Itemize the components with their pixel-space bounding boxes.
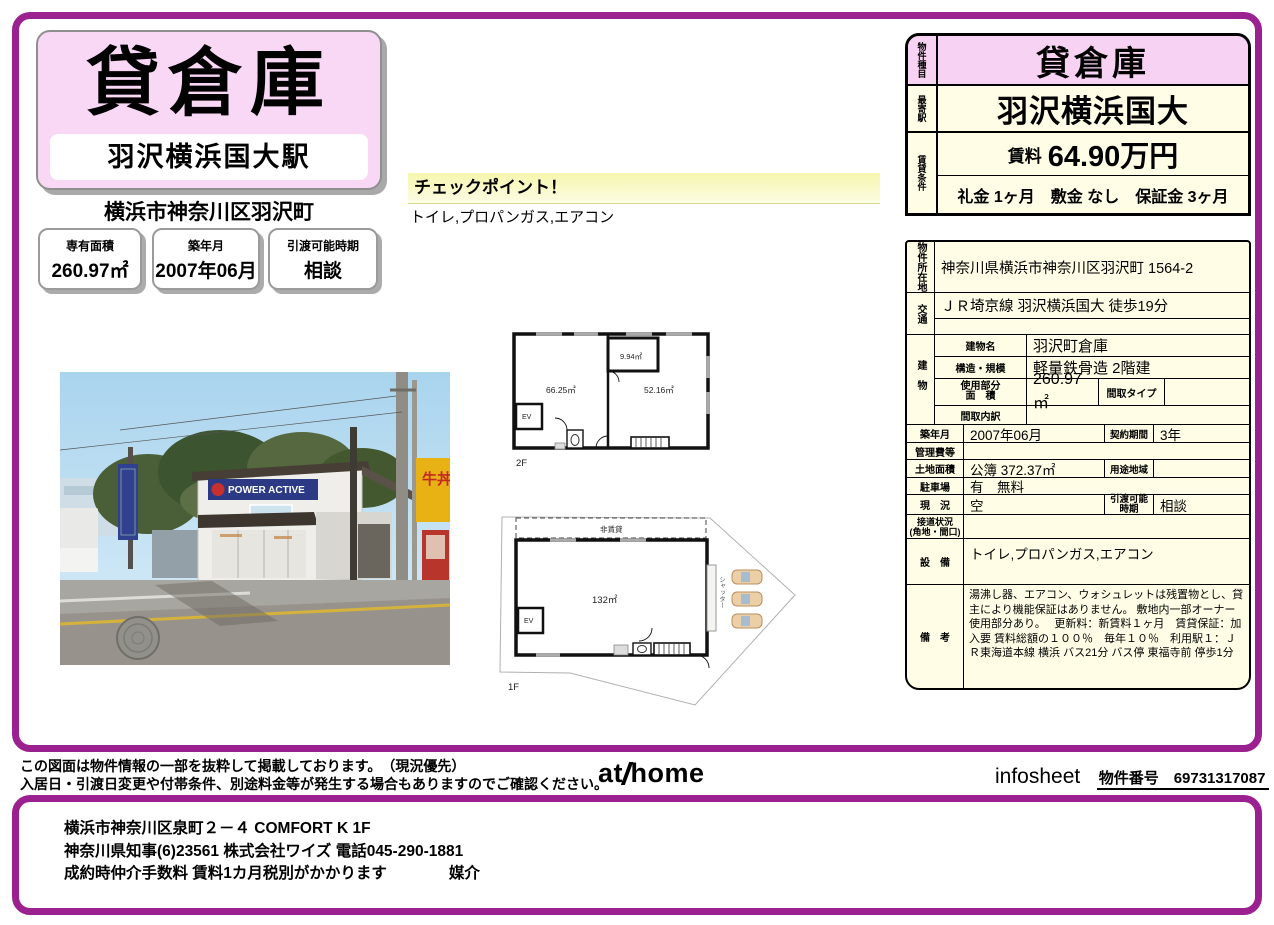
summary-table: 物件種目 貸倉庫 最寄駅 羽沢横浜国大 賃貸条件 賃料 64.90万円 礼金 1… — [905, 33, 1251, 216]
agent-fee: 成約時仲介手数料 賃料1カ月税別がかかります 媒介 — [64, 863, 480, 886]
fees-value — [964, 443, 1249, 459]
summary-terms-label: 賃貸条件 — [908, 133, 938, 213]
badge-label: 引渡可能時期 — [270, 237, 376, 254]
property-address: 横浜市神奈川区羽沢町 — [36, 196, 382, 226]
badge-value: 260.97㎡ — [40, 256, 140, 283]
agent-info: 横浜市神奈川区泉町２－４ COMFORT K 1F 神奈川県知事(6)23561… — [64, 818, 480, 886]
location-label: 物件所在地 — [907, 242, 935, 292]
fp2-room-right-area: 52.16㎡ — [644, 385, 674, 395]
row-status: 現 況 空 引渡可能 時期 相談 — [907, 494, 1249, 514]
badge-handover: 引渡可能時期 相談 — [268, 228, 378, 290]
summary-station-value: 羽沢横浜国大 — [938, 86, 1248, 133]
status-value: 空 — [964, 495, 1105, 514]
building-name-value: 羽沢町倉庫 — [1027, 335, 1249, 356]
fp1-area-label: 132㎡ — [592, 595, 618, 606]
row-location: 物件所在地 神奈川県横浜市神奈川区羽沢町 1564-2 — [907, 242, 1249, 292]
fp1-shutter-label: シャッター — [718, 576, 726, 609]
row-access: 交通 ＪＲ埼京線 羽沢横浜国大 徒歩19分 — [907, 292, 1249, 334]
property-photo: POWER ACTIVE 牛丼 — [60, 372, 450, 665]
building-sign-text: POWER ACTIVE — [228, 485, 305, 496]
property-type-title: 貸倉庫 — [38, 32, 380, 134]
contract-value: 3年 — [1154, 425, 1249, 442]
badge-label: 専有面積 — [40, 237, 140, 254]
row-built: 築年月 2007年06月 契約期間 3年 — [907, 424, 1249, 442]
row-land: 土地面積 公簿 372.37㎡ 用途地域 — [907, 459, 1249, 477]
row-parking: 駐車場 有 無料 — [907, 477, 1249, 494]
summary-terms-value: 礼金 1ヶ月 敷金 なし 保証金 3ヶ月 — [938, 176, 1248, 213]
rent-label: 賃料 — [1008, 142, 1042, 167]
remarks-label: 備 考 — [907, 585, 964, 688]
fp2-stairs — [631, 437, 669, 448]
floorplan-2f: 66.25㎡ 52.16㎡ 9.94㎡ EV 2F — [500, 326, 715, 472]
checkpoint-header: チェックポイント！ — [408, 173, 880, 204]
station-name-box: 羽沢横浜国大駅 — [50, 134, 368, 180]
property-type-card: 貸倉庫 羽沢横浜国大駅 — [36, 30, 382, 190]
at-home-logo: athome — [598, 758, 705, 789]
shop-sign-text: 牛丼 — [422, 470, 450, 488]
fp1-cars — [732, 570, 762, 628]
fees-label: 管理費等 — [907, 443, 964, 459]
summary-type-label: 物件種目 — [908, 36, 938, 86]
property-number: 物件番号 69731317087 — [1097, 770, 1270, 790]
contract-label: 契約期間 — [1105, 425, 1154, 442]
handover-label: 引渡可能 時期 — [1105, 495, 1154, 514]
fp2-small-room-area: 9.94㎡ — [620, 352, 643, 361]
location-value: 神奈川県横浜市神奈川区羽沢町 1564-2 — [935, 242, 1249, 292]
fp1-stairs — [654, 643, 690, 655]
road-label: 接道状況 (角地・間口) — [907, 515, 964, 538]
built-label: 築年月 — [907, 425, 964, 442]
layout-type-label: 間取タイプ — [1099, 379, 1165, 405]
utility-pole — [350, 427, 357, 582]
fp1-elevator-label: EV — [524, 618, 534, 625]
land-label: 土地面積 — [907, 460, 964, 477]
fp1-sink — [614, 645, 628, 655]
utility-pole — [396, 372, 408, 590]
access-value-2 — [935, 318, 1249, 334]
used-area-label: 使用部分 面 積 — [935, 379, 1027, 405]
sign-logo — [212, 483, 225, 496]
fp2-elevator-label: EV — [522, 414, 532, 421]
fp1-shutter — [707, 565, 716, 631]
summary-type-value: 貸倉庫 — [938, 36, 1248, 86]
badge-floor-area: 専有面積 260.97㎡ — [38, 228, 142, 290]
rent-value: 64.90万円 — [1048, 133, 1179, 175]
summary-rent-row: 賃料 64.90万円 — [938, 133, 1248, 176]
badge-built-date: 築年月 2007年06月 — [152, 228, 260, 290]
fp1-toilet — [633, 643, 651, 655]
badge-label: 築年月 — [154, 237, 258, 254]
access-label: 交通 — [907, 293, 935, 334]
row-fees: 管理費等 — [907, 442, 1249, 459]
fp1-floor-label: 1F — [508, 682, 519, 693]
row-used-area: 使用部分 面 積 260.97㎡ 間取タイプ — [935, 378, 1249, 405]
structure-label: 構造・規模 — [935, 357, 1027, 378]
zone-label: 用途地域 — [1105, 460, 1154, 477]
fence — [152, 530, 202, 578]
infosheet-word: infosheet — [995, 765, 1080, 788]
shop-sign — [416, 458, 450, 522]
truck — [60, 508, 98, 550]
disclaimer: この図面は物件情報の一部を抜粋して掲載しております。 （現況優先） 入居日・引渡… — [20, 757, 608, 793]
equipment-value: トイレ,プロパンガス,エアコン — [964, 539, 1249, 584]
row-structure: 構造・規模 軽量鉄骨造 2階建 — [935, 356, 1249, 378]
fp2-floor-label: 2F — [516, 458, 527, 469]
agent-address: 横浜市神奈川区泉町２－４ COMFORT K 1F — [64, 818, 480, 841]
used-area-value: 260.97㎡ — [1027, 379, 1099, 405]
infosheet-block: infosheet 物件番号 69731317087 — [995, 765, 1269, 789]
remarks-value: 湯沸し器、エアコン、ウォシュレットは残置物とし、貸主により機能保証はありません。… — [964, 585, 1249, 688]
checkpoint-items: トイレ,プロパンガス,エアコン — [410, 206, 614, 227]
road-value — [964, 515, 1249, 538]
equipment-label: 設 備 — [907, 539, 964, 584]
parking-label: 駐車場 — [907, 478, 964, 494]
zone-value — [1154, 460, 1249, 477]
built-value: 2007年06月 — [964, 425, 1105, 442]
row-layout-detail: 間取内訳 — [935, 405, 1249, 424]
agent-license: 神奈川県知事(6)23561 株式会社ワイズ 電話045-290-1881 — [64, 841, 480, 864]
infosheet-page: 貸倉庫 羽沢横浜国大駅 横浜市神奈川区羽沢町 専有面積 260.97㎡ 築年月 … — [0, 0, 1274, 925]
building-label: 建物 — [907, 335, 935, 424]
row-building-name: 建物名 羽沢町倉庫 — [935, 335, 1249, 356]
building-name-label: 建物名 — [935, 335, 1027, 356]
parking-value: 有 無料 — [964, 478, 1249, 494]
layout-detail-label: 間取内訳 — [935, 406, 1027, 424]
summary-station-label: 最寄駅 — [908, 86, 938, 133]
fp1-non-rental-label: 非賃貸 — [600, 524, 623, 534]
details-table: 物件所在地 神奈川県横浜市神奈川区羽沢町 1564-2 交通 ＪＲ埼京線 羽沢横… — [905, 240, 1251, 690]
row-remarks: 備 考 湯沸し器、エアコン、ウォシュレットは残置物とし、貸主により機能保証はあり… — [907, 584, 1249, 688]
disclaimer-line2: 入居日・引渡日変更や付帯条件、別途料金等が発生する場合もありますのでご確認くださ… — [20, 775, 608, 793]
status-label: 現 況 — [907, 495, 964, 514]
fp2-room-left-area: 66.25㎡ — [546, 385, 576, 395]
row-building: 建物 建物名 羽沢町倉庫 構造・規模 軽量鉄骨造 2階建 使用部分 面 積 26… — [907, 334, 1249, 424]
disclaimer-line1: この図面は物件情報の一部を抜粋して掲載しております。 （現況優先） — [20, 757, 608, 775]
row-equipment: 設 備 トイレ,プロパンガス,エアコン — [907, 538, 1249, 584]
land-value: 公簿 372.37㎡ — [964, 460, 1105, 477]
layout-detail-value — [1027, 406, 1249, 424]
layout-type-value — [1165, 379, 1249, 405]
handover-value: 相談 — [1154, 495, 1249, 514]
row-road: 接道状況 (角地・間口) — [907, 514, 1249, 538]
floorplan-1f: 非賃貸 132㎡ EV シャッター — [492, 508, 802, 708]
badge-value: 2007年06月 — [154, 256, 258, 283]
access-value: ＪＲ埼京線 羽沢横浜国大 徒歩19分 — [935, 293, 1249, 318]
badge-value: 相談 — [270, 256, 376, 283]
fp2-sink — [555, 443, 565, 449]
